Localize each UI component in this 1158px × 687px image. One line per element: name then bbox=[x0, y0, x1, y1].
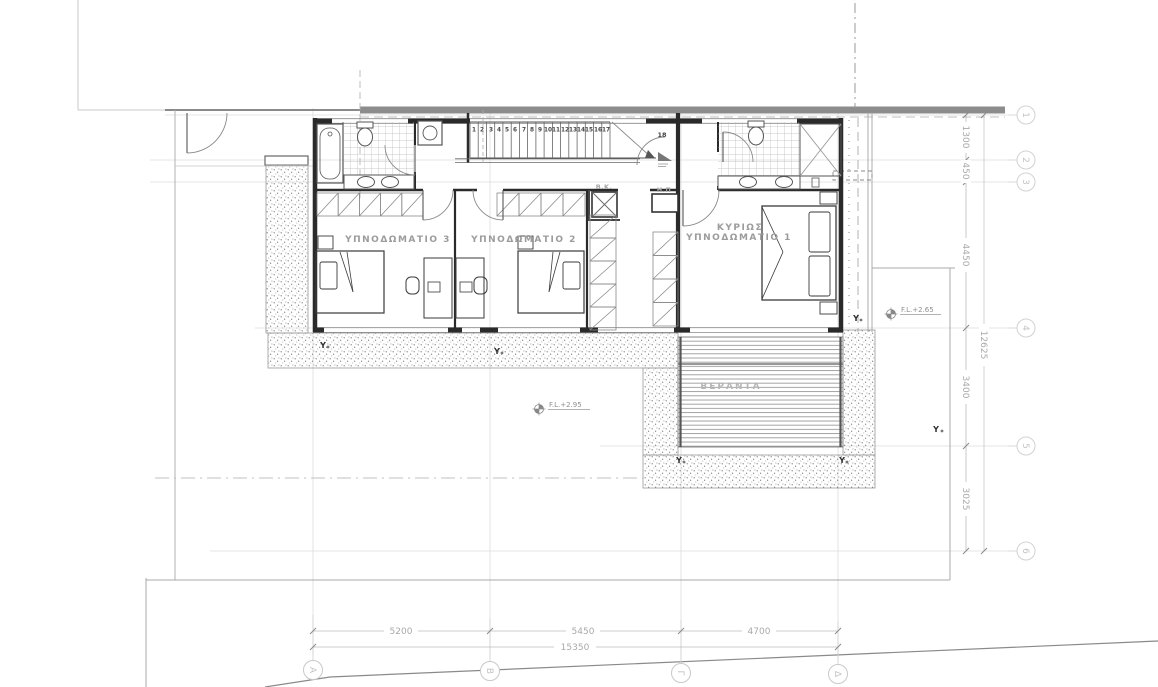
bubble-letter: Δ bbox=[832, 671, 842, 678]
bed bbox=[762, 206, 836, 300]
washing-machine bbox=[418, 121, 442, 145]
panel-label: Η.Π bbox=[657, 186, 672, 194]
bubble-number: 5 bbox=[1020, 443, 1030, 449]
dim-450: 450 bbox=[960, 162, 970, 179]
pillow bbox=[809, 256, 830, 296]
master-furniture bbox=[762, 192, 837, 314]
nightstand bbox=[820, 192, 837, 204]
bubble-number: 2 bbox=[1020, 157, 1030, 163]
tread-number: 16 bbox=[594, 128, 602, 134]
bedroom-3-furniture bbox=[316, 236, 452, 318]
level-marker-terrace: F.L.+2.65 bbox=[885, 306, 942, 321]
tread-number: 8 bbox=[530, 128, 534, 134]
grid-bubble-A: Α bbox=[304, 661, 323, 680]
grid-bubble-Gamma: Γ bbox=[672, 664, 691, 683]
wood-deck bbox=[678, 337, 843, 447]
bathroom-2 bbox=[718, 121, 841, 189]
dim-4700: 4700 bbox=[748, 627, 771, 637]
tread-number: 7 bbox=[522, 128, 526, 134]
bubble-number: 6 bbox=[1020, 548, 1030, 554]
chair bbox=[406, 277, 419, 294]
column-marker: Y bbox=[852, 314, 862, 323]
master-door-arc bbox=[683, 190, 719, 226]
bathroom-1 bbox=[317, 121, 442, 189]
tread-number: 14 bbox=[577, 128, 585, 134]
column-marker: Y bbox=[932, 425, 943, 434]
tread-number: 2 bbox=[480, 128, 484, 134]
toilet-tank bbox=[357, 122, 373, 128]
grid-bubble-B: Β bbox=[481, 662, 500, 681]
bedroom-2-furniture bbox=[456, 236, 584, 318]
tread-number: 15 bbox=[585, 128, 593, 134]
stair-arrowhead bbox=[645, 150, 655, 158]
bubble-number: 4 bbox=[1020, 325, 1030, 331]
chair bbox=[474, 277, 487, 294]
vanity-counter bbox=[344, 175, 414, 189]
floor-plan-canvas: 1 2 3 4 5 6 7 8 9 10 11 12 13 14 15 16 1… bbox=[0, 0, 1158, 687]
tread-number: 12 bbox=[561, 128, 569, 134]
grid-bubble-4: 4 bbox=[1017, 319, 1035, 337]
y-label: Y bbox=[675, 456, 682, 465]
tread-number: 9 bbox=[538, 128, 542, 134]
tread-number: 10 bbox=[544, 128, 552, 134]
y-label: Y bbox=[838, 456, 845, 465]
room-label-veranda: ΒΕΡΑΝΤΑ bbox=[700, 382, 761, 392]
bubble-number: 3 bbox=[1020, 179, 1030, 185]
tread-number: 13 bbox=[569, 128, 577, 134]
grid-bubble-Delta: Δ bbox=[829, 665, 848, 684]
toilet bbox=[749, 127, 764, 145]
tread-number: 1 bbox=[472, 128, 476, 134]
grid-bubble-6: 6 bbox=[1017, 542, 1035, 560]
nightstand bbox=[318, 236, 333, 249]
bed bbox=[518, 251, 584, 313]
bubble-number: 1 bbox=[1020, 112, 1030, 118]
floor-plan-svg: 1 2 3 4 5 6 7 8 9 10 11 12 13 14 15 16 1… bbox=[0, 0, 1158, 687]
landing-number: 18 bbox=[657, 131, 667, 139]
pillow bbox=[809, 212, 830, 252]
shower-control bbox=[812, 178, 819, 187]
tread-number: 6 bbox=[513, 128, 517, 134]
stair-numbers: 1 2 3 4 5 6 7 8 9 10 11 12 13 14 15 16 1… bbox=[472, 128, 667, 140]
bedroom3-door-arc bbox=[423, 190, 453, 220]
room-label-master-2: ΥΠΝΟΔΩΜΑΤΙΟ 1 bbox=[685, 233, 792, 243]
y-label: Y bbox=[932, 425, 939, 434]
room-label-bedroom3: ΥΠΝΟΔΩΜΑΤΙΟ 3 bbox=[344, 235, 451, 245]
nightstand bbox=[820, 302, 837, 314]
stair-direction-line bbox=[612, 122, 652, 158]
dim-3025: 3025 bbox=[960, 488, 970, 511]
bubble-letter: Β bbox=[484, 668, 494, 674]
dim-1300: 1300 bbox=[960, 126, 970, 149]
toilet-tank bbox=[748, 121, 764, 127]
dim-15350: 15350 bbox=[561, 643, 590, 653]
pillow bbox=[563, 262, 580, 289]
tread-number: 4 bbox=[497, 128, 501, 134]
closet-bedroom3 bbox=[317, 193, 423, 216]
service-shafts bbox=[589, 190, 678, 220]
grid-bubble-5: 5 bbox=[1017, 437, 1035, 455]
bubble-letter: Α bbox=[307, 667, 317, 674]
tread-number: 5 bbox=[505, 128, 509, 134]
y-label: Y bbox=[319, 341, 326, 350]
bedroom2-door-arc bbox=[473, 190, 503, 220]
retaining-wall-band bbox=[360, 107, 1005, 114]
dim-12625: 12625 bbox=[978, 331, 988, 360]
shaft-label: Β.Κ. bbox=[596, 183, 613, 191]
floor-level-main: F.L.+2.95 bbox=[549, 401, 582, 409]
dim-4450: 4450 bbox=[960, 244, 970, 267]
dim-5200: 5200 bbox=[390, 627, 413, 637]
level-marker-main: F.L.+2.95 bbox=[533, 401, 591, 416]
grid-bubbles-right: 1 2 3 4 5 6 bbox=[1008, 106, 1035, 560]
grid-bubble-1: 1 bbox=[1017, 106, 1035, 124]
tread-number: 17 bbox=[602, 128, 610, 134]
band-cap bbox=[265, 156, 308, 165]
electrical-panel-niche bbox=[652, 194, 678, 212]
toilet bbox=[358, 128, 373, 146]
room-label-master-1: ΚΥΡΙΩΣ bbox=[717, 223, 763, 233]
tread-number: 3 bbox=[489, 128, 493, 134]
tread-number: 11 bbox=[552, 128, 560, 134]
dimensions-right: 1300 450 4450 3400 3025 12625 bbox=[960, 112, 989, 554]
pillow bbox=[320, 262, 337, 289]
exterior-door-arc bbox=[187, 113, 227, 153]
grid-bubbles-bottom: Α Β Γ Δ bbox=[304, 661, 848, 684]
road-edge bbox=[265, 641, 1158, 687]
dim-3400: 3400 bbox=[960, 376, 970, 399]
closets bbox=[317, 193, 678, 330]
dim-5450: 5450 bbox=[572, 627, 595, 637]
dimensions-bottom: 5200 5450 4700 15350 bbox=[310, 615, 841, 665]
y-label: Y bbox=[493, 347, 500, 356]
grid-bubble-3: 3 bbox=[1017, 173, 1035, 191]
closet-bedroom2 bbox=[497, 193, 585, 216]
bubble-letter: Γ bbox=[675, 670, 685, 675]
y-label: Y bbox=[852, 314, 859, 323]
room-label-bedroom2: ΥΠΝΟΔΩΜΑΤΙΟ 2 bbox=[470, 235, 577, 245]
floor-level-terrace: F.L.+2.65 bbox=[901, 306, 934, 314]
grid-bubble-2: 2 bbox=[1017, 151, 1035, 169]
walkin-closet-shelves bbox=[590, 215, 678, 330]
